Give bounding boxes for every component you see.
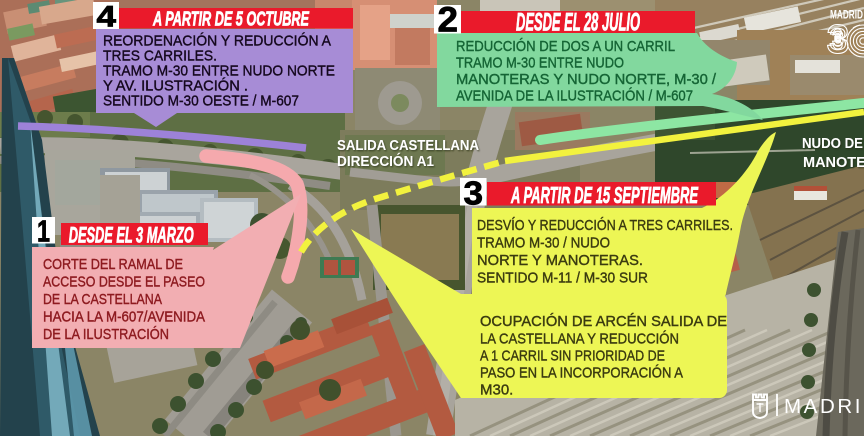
svg-text:TRAMO M-30 / NUDO: TRAMO M-30 / NUDO [477,235,610,252]
svg-text:SALIDA CASTELLANA: SALIDA CASTELLANA [337,138,479,154]
svg-text:3: 3 [835,33,841,45]
svg-text:LA CASTELLANA Y REDUCCIÓN: LA CASTELLANA Y REDUCCIÓN [480,331,679,348]
svg-text:A 1 CARRIL SIN PRIORIDAD DE: A 1 CARRIL SIN PRIORIDAD DE [480,348,665,365]
svg-text:OCUPACIÓN DE ARCÉN SALIDA DE: OCUPACIÓN DE ARCÉN SALIDA DE [480,313,727,330]
svg-text:SENTIDO M-11 / M-30 SUR: SENTIDO M-11 / M-30 SUR [477,270,648,287]
svg-text:4: 4 [97,1,117,34]
svg-text:DIRECCIÓN A1: DIRECCIÓN A1 [337,152,434,170]
svg-text:TRAMO M-30 ENTRE NUDO: TRAMO M-30 ENTRE NUDO [456,55,624,72]
svg-text:DESDE EL 3 MARZO: DESDE EL 3 MARZO [69,223,194,248]
svg-text:CORTE DEL RAMAL DE: CORTE DEL RAMAL DE [43,256,183,273]
svg-text:A PARTIR DE 15 SEPTIEMBRE: A PARTIR DE 15 SEPTIEMBRE [510,182,698,208]
svg-text:MANOTERAS: MANOTERAS [803,155,864,171]
svg-text:3: 3 [464,175,484,212]
svg-text:DESDE EL 28 JULIO: DESDE EL 28 JULIO [516,9,640,37]
svg-text:HACIA LA M-607/AVENIDA: HACIA LA M-607/AVENIDA [43,309,205,326]
svg-text:SENTIDO M-30 OESTE / M-607: SENTIDO M-30 OESTE / M-607 [103,93,299,110]
svg-text:NUDO DE: NUDO DE [802,136,863,152]
svg-text:REDUCCIÓN DE DOS A UN CARRIL: REDUCCIÓN DE DOS A UN CARRIL [456,38,675,55]
svg-text:NORTE Y MANOTERAS.: NORTE Y MANOTERAS. [477,252,643,269]
svg-text:PASO EN LA INCORPORACIÓN A: PASO EN LA INCORPORACIÓN A [480,365,683,382]
svg-text:MANOTERAS Y NUDO NORTE, M-30 /: MANOTERAS Y NUDO NORTE, M-30 / [456,71,717,88]
svg-text:A PARTIR DE 5 OCTUBRE: A PARTIR DE 5 OCTUBRE [152,8,309,31]
svg-text:1: 1 [37,214,50,249]
svg-text:2: 2 [438,1,459,40]
svg-text:DESVÍO Y REDUCCIÓN A TRES CARR: DESVÍO Y REDUCCIÓN A TRES CARRILES. [477,217,733,234]
svg-text:MADRID: MADRID [784,395,864,418]
svg-text:AVENIDA DE LA ILUSTRACIÓN / M-: AVENIDA DE LA ILUSTRACIÓN / M-607 [456,88,693,105]
svg-text:DE LA ILUSTRACIÓN: DE LA ILUSTRACIÓN [43,326,169,343]
svg-text:M30.: M30. [480,382,513,399]
svg-text:ACCESO DESDE EL PASEO: ACCESO DESDE EL PASEO [43,274,205,291]
svg-text:DE LA CASTELLANA: DE LA CASTELLANA [43,291,162,308]
